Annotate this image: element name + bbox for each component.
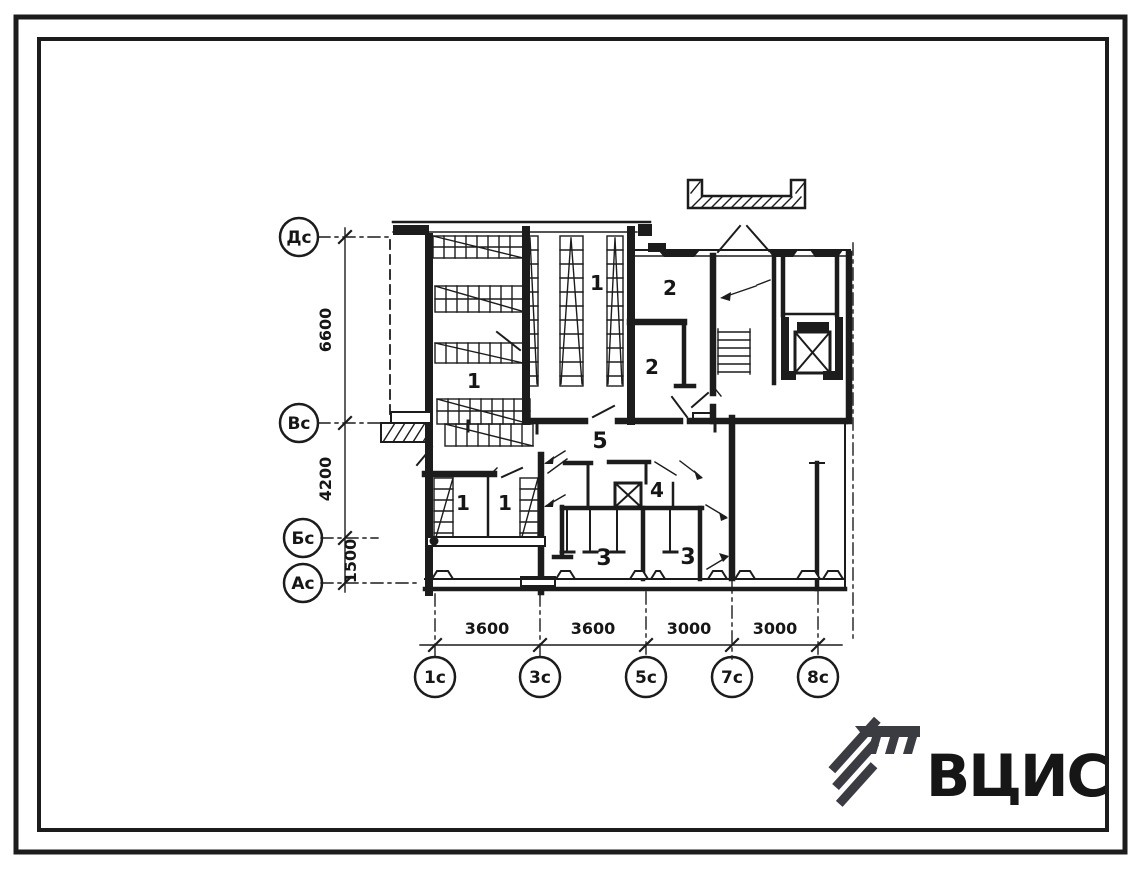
axis-label-5s: 5с — [635, 668, 657, 688]
upper-right-block — [630, 224, 850, 421]
room-label-4: 4 — [650, 478, 664, 502]
door-leaf — [692, 393, 708, 407]
axis-label-bs: Бс — [291, 529, 314, 549]
dim-3600-a: 3600 — [465, 619, 510, 638]
stair-flight-ladders-left — [433, 236, 533, 446]
vcis-logo-mark — [815, 717, 920, 807]
axis-label-ds: Дс — [286, 228, 311, 248]
axis-label-1s: 1с — [424, 668, 446, 688]
leader-arrowhead — [694, 470, 703, 480]
door-leaf — [502, 468, 522, 477]
column-dot — [430, 537, 439, 546]
room-label-1-left-b: 1 — [498, 491, 512, 515]
corridor-label-5: 5 — [592, 429, 607, 454]
dim-3000-a: 3000 — [667, 619, 712, 638]
axis-label-8s: 8с — [807, 668, 829, 688]
room-label-3-right: 3 — [680, 545, 695, 570]
dim-1500: 1500 — [341, 539, 360, 584]
dim-6600: 6600 — [316, 308, 335, 353]
door-leaf — [672, 397, 687, 417]
leader-arrowhead — [719, 512, 728, 521]
room-label-1-upper-left: 1 — [467, 369, 481, 393]
hatched-wall-piece — [381, 412, 431, 442]
stair-flights-vertical — [523, 236, 623, 386]
vcis-logo-text: ВЦИС — [926, 742, 1107, 810]
elevator-shaft — [781, 317, 843, 380]
balcony-section-hatched — [688, 180, 805, 208]
window-sill-bumps — [432, 571, 843, 579]
door-leaves-open — [718, 226, 769, 252]
axis-label-3s: 3с — [529, 668, 551, 688]
floor-plan-drawing: 1 1 2 2 5 1 1 4 3 3 Дс Вс Бс Ас 6600 420… — [0, 0, 1139, 869]
axis-label-7s: 7с — [721, 668, 743, 688]
door-leaf — [593, 406, 614, 417]
room-label-3-left: 3 — [596, 546, 611, 571]
room-label-1-stair-hall: 1 — [590, 271, 604, 295]
room-label-1-left-a: 1 — [456, 491, 470, 515]
bottom-exterior-wall — [425, 571, 845, 589]
bottom-axis-dimensions: 1с 3с 5с 7с 8с 3600 3600 3000 3000 — [415, 581, 842, 697]
stall-area — [548, 459, 729, 579]
axis-label-vs: Вс — [287, 414, 310, 434]
drawing-sheet: 1 1 2 2 5 1 1 4 3 3 Дс Вс Бс Ас 6600 420… — [0, 0, 1139, 869]
stair-hall — [523, 230, 631, 421]
window-sill — [658, 250, 700, 257]
axis-label-as: Ас — [291, 574, 314, 594]
elevator-x-mark — [795, 332, 830, 373]
left-axis-dimensions: Дс Вс Бс Ас 6600 4200 1500 — [280, 218, 420, 602]
leader-arrowhead — [720, 292, 731, 301]
sheet-frame — [16, 17, 1125, 852]
stair-ladders-small — [434, 478, 538, 544]
room-label-2-upper: 2 — [663, 276, 677, 300]
shaft-x-mark — [615, 483, 641, 507]
room-label-2-lower: 2 — [645, 355, 659, 379]
staircase-steps — [718, 329, 750, 374]
dim-3600-b: 3600 — [571, 619, 616, 638]
vcis-logo: ВЦИС — [815, 717, 1107, 810]
dim-3000-b: 3000 — [753, 619, 798, 638]
dim-4200: 4200 — [316, 457, 335, 502]
